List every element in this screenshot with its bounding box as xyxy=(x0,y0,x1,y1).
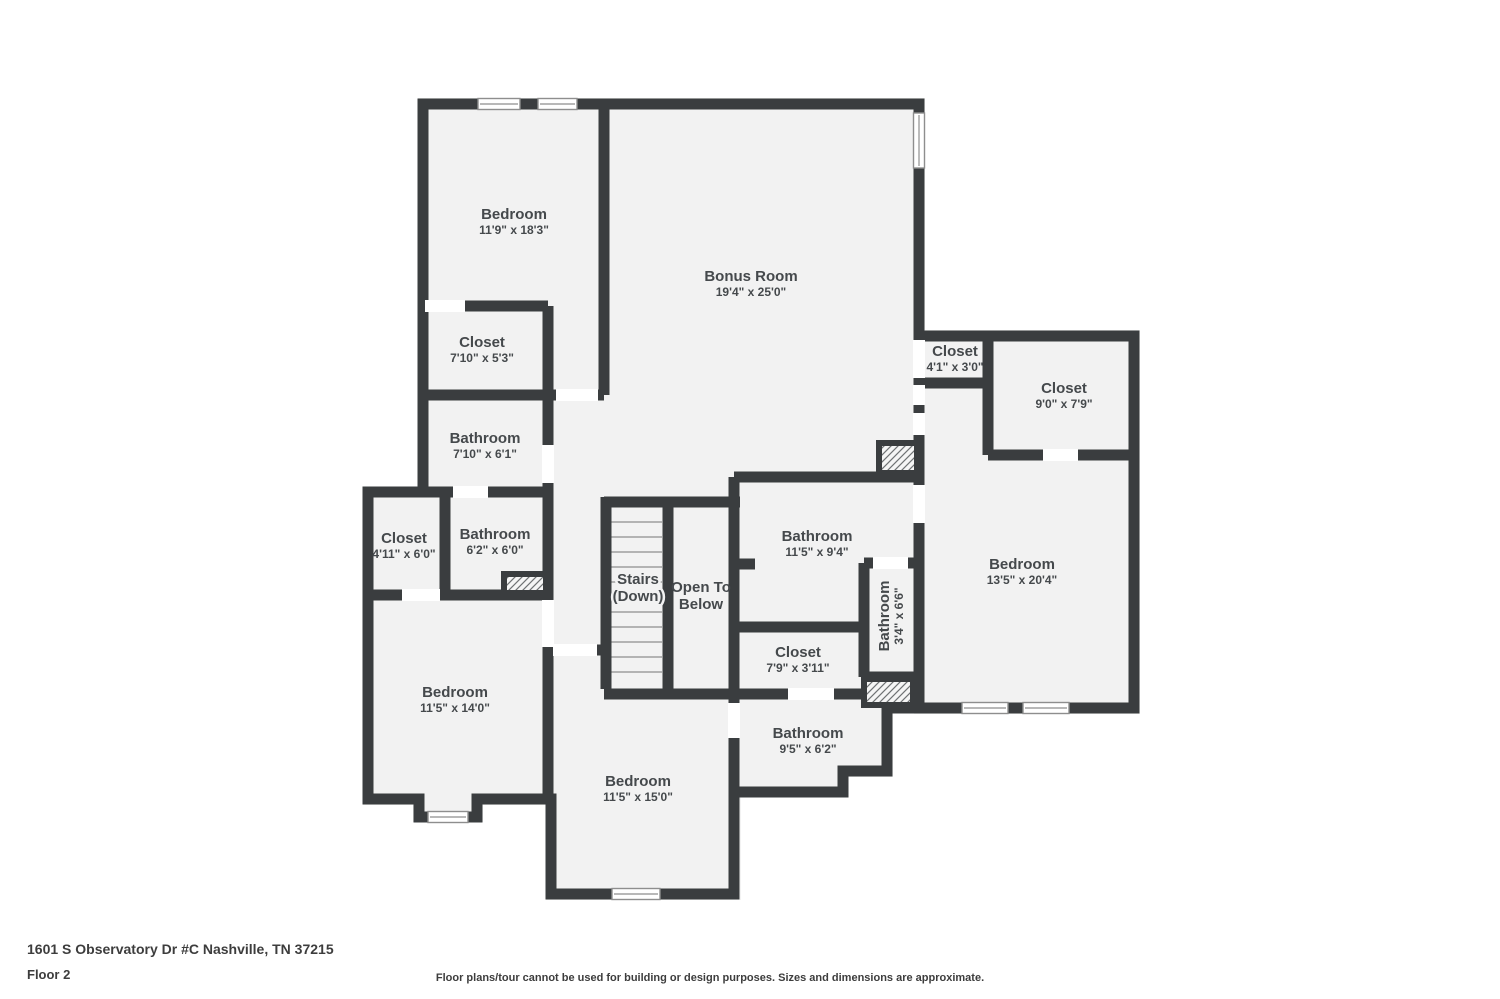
room-dims-bathroom-115: 11'5" x 9'4" xyxy=(785,545,848,559)
room-dims-bathroom-710: 7'10" x 6'1" xyxy=(453,447,517,461)
room-label-bedroom-right: Bedroom xyxy=(989,556,1055,573)
room-dims-bonus-room: 19'4" x 25'0" xyxy=(716,285,786,299)
room-dims-stairs: (Down) xyxy=(613,588,664,605)
room-label-bedroom-top-left: Bedroom xyxy=(481,206,547,223)
address-text: 1601 S Observatory Dr #C Nashville, TN 3… xyxy=(27,941,334,957)
room-label-bedroom-bottom-middle: Bedroom xyxy=(605,773,671,790)
room-dims-closet-79: 7'9" x 3'11" xyxy=(766,661,829,675)
door-opening xyxy=(425,300,465,312)
room-label-bathroom-62: Bathroom xyxy=(460,526,531,543)
door-opening xyxy=(453,486,488,498)
door-opening xyxy=(542,445,554,483)
room-dims-bedroom-bottom-left: 11'5" x 14'0" xyxy=(420,701,490,715)
room-fills xyxy=(363,98,1140,900)
window-symbol xyxy=(612,889,660,900)
door-opening xyxy=(542,600,554,647)
floor-plan-page: Bedroom 11'9" x 18'3" Bonus Room 19'4" x… xyxy=(0,0,1500,999)
room-dims-closet-710: 7'10" x 5'3" xyxy=(450,351,514,365)
window-symbol xyxy=(914,113,925,168)
shower-hatch-symbol xyxy=(504,574,546,593)
window-symbol xyxy=(478,99,520,110)
door-opening xyxy=(553,644,597,656)
disclaimer-text: Floor plans/tour cannot be used for buil… xyxy=(0,972,1420,984)
room-label-stairs: Stairs xyxy=(617,571,659,588)
window-symbol xyxy=(962,703,1008,714)
door-opening xyxy=(788,688,834,700)
room-label-closet-90: Closet xyxy=(1041,380,1087,397)
door-opening xyxy=(913,385,925,405)
door-opening xyxy=(728,703,740,738)
room-dims-bathroom-95: 9'5" x 6'2" xyxy=(779,742,836,756)
door-opening xyxy=(913,413,925,435)
room-label-bathroom-115: Bathroom xyxy=(782,528,853,545)
room-dims-bedroom-bottom-middle: 11'5" x 15'0" xyxy=(603,790,673,804)
room-label-open-to-below: Open To xyxy=(671,579,731,596)
room-label-closet-411: Closet xyxy=(381,530,427,547)
door-opening xyxy=(556,389,598,401)
room-label-bathroom-95: Bathroom xyxy=(773,725,844,742)
room-dims-bedroom-right: 13'5" x 20'4" xyxy=(987,573,1057,587)
room-label-bedroom-bottom-left: Bedroom xyxy=(422,684,488,701)
shower-hatch-symbol xyxy=(879,443,917,473)
room-dims-bathroom-34: 3'4" x 6'6" xyxy=(892,587,906,644)
door-opening xyxy=(913,485,925,523)
door-opening xyxy=(873,557,908,569)
window-symbol xyxy=(538,99,577,110)
room-dims-closet-411: 4'11" x 6'0" xyxy=(372,547,435,561)
room-dims-open-to-below: Below xyxy=(679,596,724,613)
room-dims-bathroom-62: 6'2" x 6'0" xyxy=(466,543,523,557)
room-dims-closet-90: 9'0" x 7'9" xyxy=(1035,397,1092,411)
door-opening xyxy=(1043,449,1078,461)
room-label-closet-41: Closet xyxy=(932,343,978,360)
room-label-closet-710: Closet xyxy=(459,334,505,351)
room-label-bathroom-710: Bathroom xyxy=(450,430,521,447)
room-label-bathroom-34: Bathroom xyxy=(876,581,893,652)
room-dims-closet-41: 4'1" x 3'0" xyxy=(926,360,983,374)
window-symbol xyxy=(1023,703,1069,714)
floor-plan: Bedroom 11'9" x 18'3" Bonus Room 19'4" x… xyxy=(0,0,1500,999)
door-opening xyxy=(913,340,925,378)
room-label-bonus-room: Bonus Room xyxy=(704,268,797,285)
window-symbol xyxy=(428,812,468,823)
room-label-closet-79: Closet xyxy=(775,644,821,661)
shower-hatch-symbol xyxy=(864,679,913,705)
door-opening xyxy=(402,589,440,601)
room-dims-bedroom-top-left: 11'9" x 18'3" xyxy=(479,223,549,237)
